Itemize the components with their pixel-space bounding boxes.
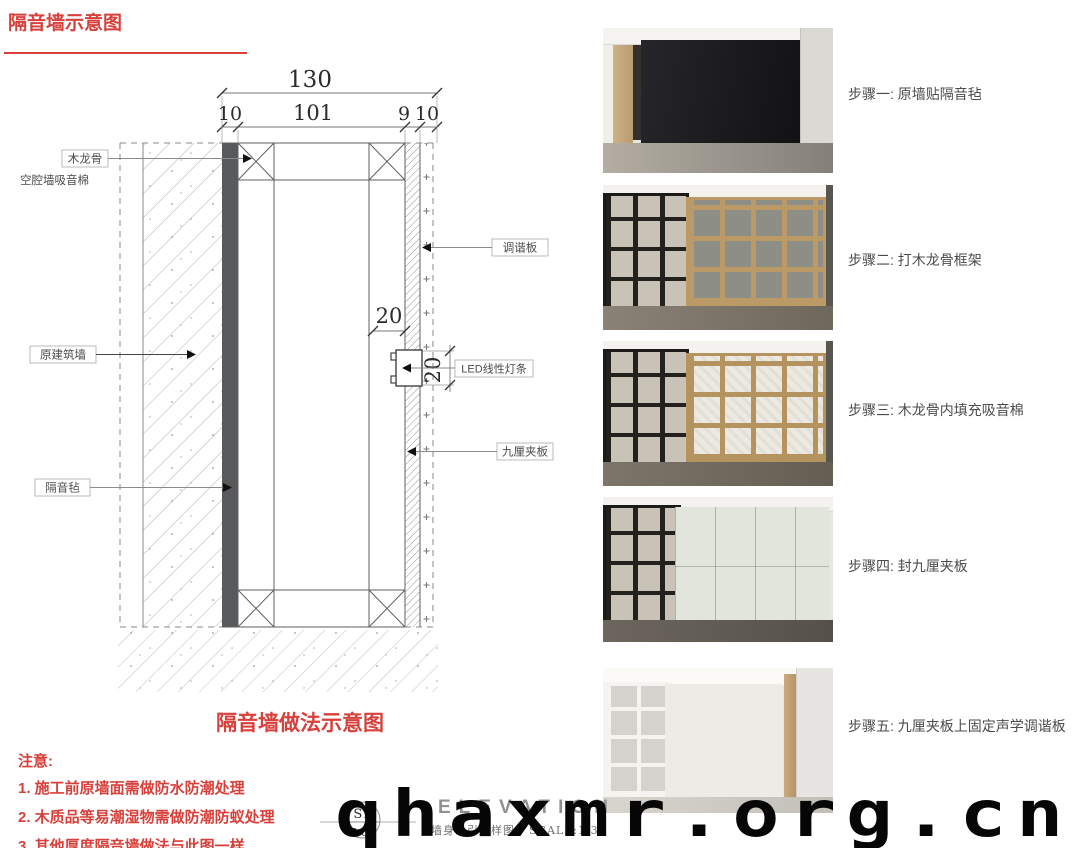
notes-heading: 注意: [18,750,275,771]
photo4-glass-door [603,505,681,628]
photo1-floor [603,143,833,173]
step-photo-2 [603,185,833,330]
label-cavity-cotton: 空腔墙吸音棉 [20,173,89,187]
dimension-total: 130 [217,67,442,98]
step-photo-1 [603,28,833,173]
svg-text:LED线性灯条: LED线性灯条 [461,362,526,376]
svg-text:10: 10 [415,103,439,125]
photo4-plywood-wall [675,507,829,620]
notes-block: 注意: 1. 施工前原墙面需做防水防潮处理 2. 木质品等易潮湿物需做防潮防蚁处… [18,750,275,848]
step-label-1: 步骤一: 原墙贴隔音毡 [848,84,1080,104]
original-wall-hatch [143,143,222,627]
wood-keel-frame [222,143,405,627]
floor-hatch [118,630,438,692]
photo2-keel-grid-wall [686,197,826,306]
svg-text:原建筑墙: 原建筑墙 [40,348,86,362]
svg-text:20: 20 [376,304,403,328]
dimension-led-width: 20 [368,304,410,336]
note-item: 3. 其他厚度隔音墙做法与此图一样 [18,835,275,848]
page-title: 隔音墙示意图 [8,8,122,35]
drawing-sheet: 隔音墙示意图 [0,0,1080,848]
photo3-floor [603,462,833,486]
photo3-glass-door [603,349,689,470]
drawing-caption: 隔音墙做法示意图 [170,707,430,737]
photo2-floor [603,306,833,330]
step-label-4: 步骤四: 封九厘夹板 [848,556,1080,576]
title-underline [4,52,247,54]
svg-text:20: 20 [421,357,445,384]
photo3-cotton-filled-wall [686,353,826,462]
svg-text:隔音毡: 隔音毡 [45,481,80,495]
photo1-felt-wall [641,40,801,143]
svg-text:九厘夹板: 九厘夹板 [502,445,548,459]
sound-felt-layer [222,143,238,627]
note-item: 1. 施工前原墙面需做防水防潮处理 [18,777,275,798]
photo1-right-column [800,28,833,149]
step-label-2: 步骤二: 打木龙骨框架 [848,250,1080,270]
photo4-floor [603,620,833,642]
photo1-door-reveal [633,36,641,140]
svg-text:木龙骨: 木龙骨 [68,153,103,166]
svg-text:9: 9 [398,103,410,125]
label-tuning-board: 调谐板 [422,239,548,256]
svg-text:调谐板: 调谐板 [503,241,538,255]
step-label-5: 步骤五: 九厘夹板上固定声学调谐板 [848,716,1080,736]
svg-text:130: 130 [288,67,332,93]
svg-text:101: 101 [293,101,333,125]
dimension-segments: 10 101 9 10 [217,96,442,143]
step-photo-4 [603,497,833,642]
photo1-wood-frame [613,28,633,144]
note-item: 2. 木质品等易潮湿物需做防潮防蚁处理 [18,806,275,827]
photo2-glass-door [603,193,689,314]
svg-text:10: 10 [218,103,242,125]
watermark-text: qhaxmr.org.cn [335,783,1073,847]
step-photo-3 [603,341,833,486]
step-label-3: 步骤三: 木龙骨内填充吸音棉 [848,400,1080,420]
wall-section-drawing: 130 10 101 9 10 [0,55,600,755]
